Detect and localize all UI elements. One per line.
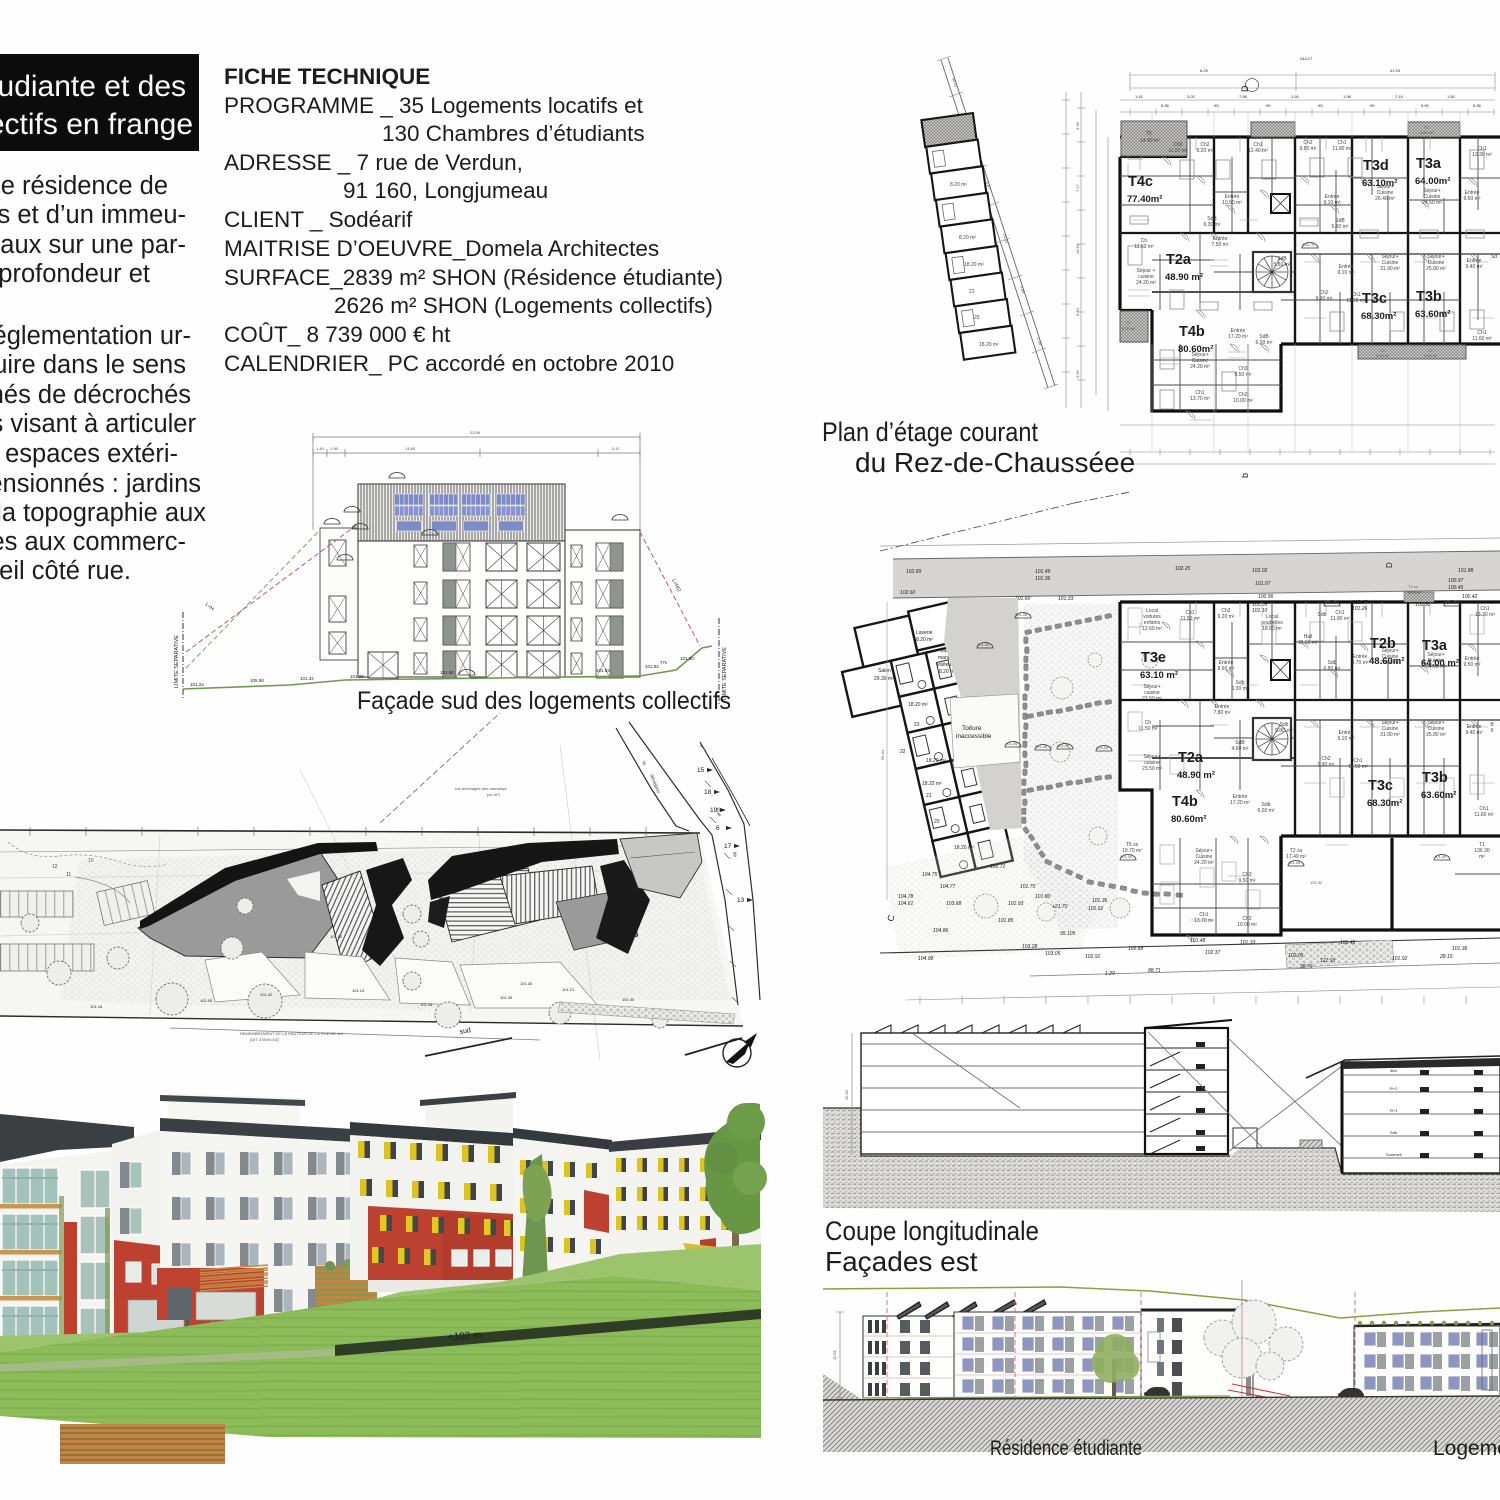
svg-text:101.45: 101.45 [1340, 940, 1356, 946]
svg-text:5.80 m²: 5.80 m² [1332, 224, 1349, 230]
svg-text:PROGRAMME _ 35 Logements locat: PROGRAMME _ 35 Logements locatifs et [224, 93, 644, 118]
svg-text:101.00: 101.00 [680, 656, 694, 661]
svg-text:(en m²): (en m²) [487, 792, 501, 797]
svg-text:24.20 m²: 24.20 m² [1194, 860, 1214, 866]
svg-text:101.40: 101.40 [622, 997, 635, 1002]
svg-text:R+2: R+2 [1390, 1086, 1398, 1091]
svg-text:14.40 m²: 14.40 m² [1140, 138, 1160, 144]
svg-text:17.20 m²: 17.20 m² [1228, 334, 1248, 340]
svg-text:63.10 m²: 63.10 m² [1140, 670, 1178, 681]
svg-text:14.80: 14.80 [405, 446, 416, 451]
svg-text:104.86: 104.86 [933, 928, 949, 934]
svg-text:la topographie aux: la topographie aux [0, 499, 206, 527]
svg-text:103.75: 103.75 [1302, 242, 1315, 247]
svg-text:9.50 m²: 9.50 m² [1464, 196, 1481, 202]
svg-text:6.80 m²: 6.80 m² [1324, 666, 1341, 672]
svg-text:8.29: 8.29 [1200, 68, 1209, 73]
svg-text:13.70 m²: 13.70 m² [1190, 396, 1210, 402]
svg-text:101.93: 101.93 [596, 668, 610, 673]
svg-text:102.89: 102.89 [906, 569, 922, 575]
svg-text:.90: .90 [1317, 103, 1323, 108]
svg-text:9.10 m²: 9.10 m² [1324, 200, 1341, 206]
svg-text:18.60 m²: 18.60 m² [1262, 626, 1282, 632]
svg-text:4.60 m²: 4.60 m² [1232, 746, 1249, 752]
svg-text:9.90 m²: 9.90 m² [1318, 762, 1335, 768]
svg-text:11.60 m²: 11.60 m² [1474, 812, 1494, 818]
svg-text:T3e: T3e [1141, 650, 1166, 666]
svg-text:101.30: 101.30 [520, 981, 533, 986]
svg-text:es et d’un immeu-: es et d’un immeu- [0, 201, 186, 229]
svg-text:100.96: 100.96 [1258, 594, 1274, 600]
svg-text:28.15: 28.15 [1439, 954, 1453, 960]
svg-text:7.98: 7.98 [1239, 94, 1248, 99]
svg-text:13.30 m²: 13.30 m² [1472, 152, 1492, 158]
svg-text:21: 21 [969, 289, 975, 295]
svg-text:Coupe longitudinale: Coupe longitudinale [825, 1216, 1039, 1246]
svg-text:9.50 m²: 9.50 m² [1464, 662, 1481, 668]
svg-text:20: 20 [934, 819, 940, 825]
svg-text:8.60 m²: 8.60 m² [1218, 666, 1235, 672]
svg-text:5.65: 5.65 [1075, 369, 1080, 378]
svg-text:101.36: 101.36 [1452, 946, 1468, 952]
svg-text:11.96: 11.96 [832, 1350, 837, 1360]
svg-text:104.77: 104.77 [940, 884, 956, 890]
svg-text:13: 13 [737, 897, 745, 904]
svg-text:102.60: 102.60 [900, 590, 916, 596]
svg-text:23: 23 [914, 722, 920, 728]
svg-text:Résidence étudiante: Résidence étudiante [990, 1437, 1142, 1460]
svg-text:24.50 m²: 24.50 m² [1422, 200, 1442, 206]
svg-text:FICHE TECHNIQUE: FICHE TECHNIQUE [224, 64, 430, 89]
svg-text:22: 22 [900, 749, 906, 755]
svg-text:7.80 m²: 7.80 m² [1214, 710, 1231, 716]
svg-text:24.20 m²: 24.20 m² [1190, 364, 1210, 370]
svg-text:11.90 m²: 11.90 m² [1330, 616, 1350, 622]
svg-text:101.05: 101.05 [1005, 741, 1018, 746]
svg-text:101.92: 101.92 [645, 664, 659, 669]
svg-text:27.50 m²: 27.50 m² [1142, 696, 1162, 702]
svg-text:15.60: 15.60 [844, 1089, 849, 1100]
svg-text:11.90 m²: 11.90 m² [1332, 146, 1352, 152]
svg-text:101.33: 101.33 [1240, 940, 1256, 946]
svg-text:ueil côté rue.: ueil côté rue. [0, 557, 131, 585]
svg-text:.90: .90 [1265, 103, 1271, 108]
svg-text:101.36: 101.36 [1092, 898, 1108, 904]
svg-text:ne résidence de: ne résidence de [0, 172, 168, 200]
svg-text:20: 20 [974, 315, 980, 321]
svg-text:4.80 m²: 4.80 m² [1420, 130, 1434, 135]
svg-text:91 160, Longjumeau: 91 160, Longjumeau [343, 178, 548, 203]
svg-text:101.34: 101.34 [300, 676, 314, 681]
svg-text:udiante et des: udiante et des [0, 70, 186, 103]
svg-text:25.80 m²: 25.80 m² [1426, 732, 1446, 738]
svg-text:9.40 m²: 9.40 m² [1466, 264, 1483, 270]
svg-text:9.20 m²: 9.20 m² [1197, 148, 1214, 154]
svg-text:13.70 m²: 13.70 m² [1194, 918, 1214, 924]
svg-text:D: D [1240, 85, 1250, 92]
svg-text:+21.70: +21.70 [1052, 904, 1068, 910]
svg-text:101.05: 101.05 [977, 642, 990, 647]
svg-text:14.50: 14.50 [1075, 243, 1080, 254]
svg-text:18.20 m²: 18.20 m² [926, 758, 946, 764]
svg-text:102.68: 102.68 [1128, 946, 1144, 952]
svg-text:18.20 m²: 18.20 m² [908, 702, 928, 708]
svg-text:17: 17 [724, 843, 732, 850]
svg-text:5.47: 5.47 [612, 446, 621, 451]
svg-text:CALENDRIER_ PC accordé en octo: CALENDRIER_ PC accordé en octobre 2010 [224, 351, 674, 376]
svg-text:24.50 m²: 24.50 m² [1426, 664, 1446, 670]
svg-text:T3c: T3c [1362, 291, 1387, 307]
svg-text:18.20 m²: 18.20 m² [964, 262, 984, 268]
svg-text:1.29: 1.29 [1105, 971, 1115, 977]
svg-text:7.17: 7.17 [1075, 183, 1080, 192]
svg-text:105.58: 105.58 [250, 678, 264, 683]
svg-text:101.92: 101.92 [1392, 956, 1408, 962]
svg-text:63.60m²: 63.60m² [1421, 790, 1456, 801]
svg-text:23.98: 23.98 [470, 430, 481, 435]
svg-text:104.78: 104.78 [898, 894, 914, 900]
svg-text:Plan d’étage courant: Plan d’étage courant [822, 417, 1038, 447]
svg-text:26.40 m²: 26.40 m² [1380, 660, 1400, 666]
svg-text:ts visant à articuler: ts visant à articuler [0, 410, 196, 438]
svg-text:més de décrochés: més de décrochés [0, 381, 191, 409]
svg-text:ccès aux commerc-: ccès aux commerc- [0, 528, 186, 556]
svg-text:13.30 m²: 13.30 m² [1475, 612, 1495, 618]
svg-text:1.91: 1.91 [1291, 94, 1300, 99]
svg-text:9.90 m²: 9.90 m² [1316, 296, 1333, 302]
svg-text:10.00 m²: 10.00 m² [1233, 398, 1253, 404]
svg-text:101.28: 101.28 [350, 674, 364, 679]
svg-text:6.00 m²: 6.00 m² [1256, 340, 1273, 346]
svg-text:cruire dans le sens: cruire dans le sens [0, 351, 186, 379]
svg-text:T3a: T3a [1416, 156, 1442, 172]
svg-text:6.30 m²: 6.30 m² [1204, 222, 1221, 228]
svg-text:48.90 m²: 48.90 m² [1165, 272, 1203, 283]
svg-text:101.07: 101.07 [1255, 581, 1271, 587]
svg-text:profondeur et: profondeur et [0, 260, 150, 288]
svg-text:R+1: R+1 [1390, 1108, 1398, 1113]
svg-text:77v: 77v [660, 660, 668, 665]
svg-text:101.26: 101.26 [1352, 606, 1368, 612]
svg-text:1.98: 1.98 [1343, 94, 1352, 99]
svg-text:6.30 m²: 6.30 m² [1232, 686, 1249, 692]
svg-text:15: 15 [697, 767, 705, 774]
svg-text:244.17: 244.17 [1300, 56, 1313, 61]
svg-text:48.90 m²: 48.90 m² [1177, 770, 1215, 781]
svg-text:4.90 m²: 4.90 m² [1424, 353, 1438, 358]
svg-text:21: 21 [926, 793, 932, 799]
svg-text:11.50 m²: 11.50 m² [1168, 148, 1188, 154]
svg-text:2626 m² SHON (Logements collec: 2626 m² SHON (Logements collectifs) [334, 293, 713, 318]
svg-text:104.75: 104.75 [922, 872, 938, 878]
svg-text:101.05: 101.05 [200, 998, 213, 1003]
svg-text:77.40m²: 77.40m² [1127, 194, 1162, 205]
svg-text:inaccessible: inaccessible [956, 733, 992, 740]
svg-text:b: b [1240, 473, 1250, 478]
svg-text:5.80 m²: 5.80 m² [1274, 262, 1291, 268]
svg-text:101.05: 101.05 [1434, 854, 1447, 859]
svg-text:103.05: 103.05 [1045, 951, 1061, 957]
svg-text:31.90 m²: 31.90 m² [1380, 266, 1400, 272]
svg-text:95.105: 95.105 [1060, 931, 1076, 937]
svg-text:ADRESSE _ 7 rue de Verdun,: ADRESSE _ 7 rue de Verdun, [224, 150, 523, 175]
svg-text:7.19: 7.19 [1395, 94, 1404, 99]
svg-text:T3b: T3b [1422, 770, 1448, 786]
svg-text:29.30 m²: 29.30 m² [874, 676, 894, 682]
svg-text:Sdb: Sdb [1390, 1130, 1398, 1135]
svg-text:17.20 m²: 17.20 m² [1230, 800, 1250, 806]
svg-text:m²: m² [1479, 854, 1485, 860]
svg-text:25.80 m²: 25.80 m² [1426, 266, 1446, 272]
svg-text:102.37: 102.37 [1205, 950, 1221, 956]
svg-text:101.05: 101.05 [1096, 745, 1109, 750]
svg-text:9.50 m²: 9.50 m² [1239, 878, 1256, 884]
svg-text:églementation ur-: églementation ur- [0, 322, 191, 350]
svg-text:10.50 m²: 10.50 m² [1222, 200, 1242, 206]
svg-text:12.60 m²: 12.60 m² [1142, 626, 1162, 632]
svg-text:Façade sud des logements colle: Façade sud des logements collectifs [357, 687, 731, 715]
svg-text:3.02: 3.02 [1187, 94, 1196, 99]
svg-text:41.93: 41.93 [1390, 68, 1401, 73]
svg-text:8.20 m²: 8.20 m² [916, 637, 933, 643]
svg-text:(DIT 47859-002): (DIT 47859-002) [250, 1037, 280, 1042]
svg-text:T2a: T2a [1166, 252, 1192, 268]
svg-text:101.80: 101.80 [1035, 894, 1051, 900]
svg-text:Sdb: Sdb [1318, 612, 1327, 618]
svg-text:T3b: T3b [1416, 289, 1442, 305]
svg-text:18.20 m²: 18.20 m² [979, 342, 999, 348]
svg-text:26.40 m²: 26.40 m² [1375, 196, 1395, 202]
svg-text:9.20 m²: 9.20 m² [1218, 614, 1235, 620]
svg-text:D: D [1385, 562, 1394, 568]
svg-text:9.10 m²: 9.10 m² [1338, 270, 1355, 276]
svg-text:9.50 m²: 9.50 m² [1235, 372, 1252, 378]
svg-text:+102 m: +102 m [447, 1330, 481, 1343]
svg-text:1.41: 1.41 [1135, 94, 1144, 99]
svg-text:Logements: Logements [1433, 1437, 1500, 1460]
svg-text:11.50 m²: 11.50 m² [1180, 616, 1200, 622]
svg-text:19: 19 [710, 807, 718, 814]
svg-text:101.13: 101.13 [352, 988, 365, 993]
svg-text:101.05: 101.05 [1035, 744, 1048, 749]
svg-text:Salon: Salon [878, 668, 891, 674]
svg-text:T5: T5 [1146, 131, 1152, 137]
svg-text:ectifs en frange: ectifs en frange [0, 108, 193, 141]
svg-text:Sommeil: Sommeil [1386, 1152, 1402, 1157]
svg-text:Façades est: Façades est [825, 1246, 978, 1277]
svg-text:101.21: 101.21 [562, 987, 575, 992]
svg-text:101.71: 101.71 [990, 864, 1006, 870]
svg-text:SURFACE_2839 m² SHON (Résiden: SURFACE_2839 m² SHON (Résidence étudiant… [224, 265, 723, 290]
svg-text:T4b: T4b [1179, 324, 1205, 340]
svg-text:59.44: 59.44 [880, 749, 885, 760]
svg-text:6.00 m²: 6.00 m² [1258, 808, 1275, 814]
svg-text:8.20 m²: 8.20 m² [959, 235, 976, 241]
svg-text:101.93: 101.93 [1008, 901, 1024, 907]
svg-text:103.68: 103.68 [946, 901, 962, 907]
svg-text:6: 6 [716, 825, 720, 832]
svg-text:T4 sx: T4 sx [1408, 584, 1418, 589]
svg-text:11.50 m²: 11.50 m² [1348, 764, 1368, 770]
svg-text:64.00m²: 64.00m² [1415, 176, 1450, 187]
svg-text:102.91: 102.91 [1085, 954, 1101, 960]
svg-text:MAITRISE D’OEUVRE_Domela Archi: MAITRISE D’OEUVRE_Domela Architectes [224, 236, 659, 261]
svg-text:Laverie: Laverie [916, 630, 933, 636]
svg-text:101.18: 101.18 [90, 1004, 103, 1009]
svg-text:1.98: 1.98 [330, 446, 339, 451]
svg-text:8.20 m²: 8.20 m² [950, 182, 967, 188]
svg-text:COÛT_ 8 739 000 € ht: COÛT_ 8 739 000 € ht [224, 322, 451, 347]
svg-text:T3c: T3c [1368, 778, 1393, 794]
svg-text:101.48: 101.48 [1190, 938, 1206, 944]
svg-text:7.50 m²: 7.50 m² [1212, 242, 1229, 248]
svg-text:6.20 m²: 6.20 m² [1122, 326, 1136, 331]
svg-text:Toiture: Toiture [962, 725, 982, 732]
svg-text:12: 12 [52, 864, 58, 870]
svg-text:LIMITE SEPARATIVE: LIMITE SEPARATIVE [174, 635, 180, 688]
svg-text:101.05: 101.05 [1120, 854, 1133, 859]
svg-text:du Rez-de-Chausséee: du Rez-de-Chausséee [855, 447, 1135, 478]
svg-text:104.61: 104.61 [898, 901, 914, 907]
svg-text:CLIENT _ Sodéarif: CLIENT _ Sodéarif [224, 207, 413, 232]
svg-text:T2a: T2a [1178, 750, 1204, 766]
svg-text:100.45: 100.45 [1448, 585, 1464, 591]
svg-text:103.28: 103.28 [1022, 944, 1038, 950]
svg-text:es espaces extéri-: es espaces extéri- [0, 440, 178, 468]
svg-text:63.60m²: 63.60m² [1415, 309, 1450, 320]
svg-text:5.8C m²: 5.8C m² [1275, 728, 1293, 734]
svg-text:.90: .90 [1213, 103, 1219, 108]
svg-text:101.85: 101.85 [998, 918, 1014, 924]
svg-text:38.76: 38.76 [1300, 964, 1313, 970]
svg-text:11.50 m²: 11.50 m² [1134, 244, 1154, 250]
svg-text:5.36: 5.36 [1473, 103, 1482, 108]
svg-text:5.90: 5.90 [1421, 103, 1430, 108]
svg-text:101.05: 101.05 [1057, 743, 1070, 748]
svg-text:9.80 m²: 9.80 m² [1300, 146, 1317, 152]
svg-text:101.42: 101.42 [260, 992, 273, 997]
svg-text:130 Chambres d’étudiants: 130 Chambres d’étudiants [382, 121, 645, 146]
svg-text:T3d: T3d [1363, 158, 1389, 174]
svg-text:121.93: 121.93 [1320, 958, 1336, 964]
svg-text:3.70 m²: 3.70 m² [1352, 660, 1369, 666]
svg-text:9: 9 [1491, 728, 1494, 734]
svg-text:68.30m²: 68.30m² [1367, 798, 1402, 809]
svg-text:6.20 m²: 6.20 m² [1408, 590, 1422, 595]
svg-text:102.02: 102.02 [1252, 568, 1268, 574]
svg-text:88.71: 88.71 [1148, 968, 1161, 974]
svg-text:101.28: 101.28 [420, 1002, 433, 1007]
svg-text:100.42: 100.42 [1462, 594, 1478, 600]
svg-text:101.50: 101.50 [440, 670, 454, 675]
svg-text:101.70: 101.70 [1020, 884, 1036, 890]
svg-text:101.88: 101.88 [1458, 568, 1474, 574]
svg-text:11.50 m²: 11.50 m² [1346, 298, 1366, 304]
svg-text:31.90 m²: 31.90 m² [1380, 732, 1400, 738]
svg-text:T4c: T4c [1128, 174, 1153, 190]
svg-text:nensionnés : jardins: nensionnés : jardins [0, 470, 201, 498]
svg-text:T4: T4 [1126, 320, 1131, 325]
svg-text:101.35: 101.35 [500, 995, 513, 1000]
svg-text:9.40 m²: 9.40 m² [1466, 730, 1483, 736]
svg-text:101.05: 101.05 [1444, 600, 1457, 605]
svg-text:5.10 m²: 5.10 m² [1376, 353, 1390, 358]
svg-text:68.30m²: 68.30m² [1361, 311, 1396, 322]
svg-text:11.60 m²: 11.60 m² [1472, 336, 1492, 342]
svg-text:101.2a: 101.2a [190, 682, 204, 687]
svg-text:101.49: 101.49 [1035, 569, 1051, 575]
svg-text:9.10 m²: 9.10 m² [1338, 736, 1355, 742]
svg-text:102.05: 102.05 [1288, 953, 1304, 959]
svg-text:rue aménagée des tramways: rue aménagée des tramways [455, 786, 507, 791]
svg-text:104.98: 104.98 [918, 956, 934, 962]
svg-text:9.20: 9.20 [1075, 307, 1080, 316]
svg-text:1.50: 1.50 [1447, 94, 1456, 99]
svg-text:1.40: 1.40 [316, 446, 325, 451]
svg-text:18: 18 [704, 789, 712, 796]
svg-text:102.25: 102.25 [1175, 566, 1191, 572]
svg-text:Sd: Sd [1491, 254, 1497, 260]
svg-text:11.50 m²: 11.50 m² [1138, 726, 1158, 732]
svg-text:18.22 m²: 18.22 m² [922, 781, 942, 787]
svg-text:3èd: 3èd [1390, 1068, 1397, 1073]
svg-text:11.50 m²: 11.50 m² [1298, 640, 1318, 646]
svg-text:101.36: 101.36 [1035, 576, 1051, 582]
svg-text:23.50 m²: 23.50 m² [1142, 766, 1162, 772]
svg-text:101.33: 101.33 [1058, 596, 1074, 602]
svg-text:101.05: 101.05 [1288, 860, 1301, 865]
svg-text:101.52: 101.52 [330, 934, 343, 939]
svg-text:11: 11 [66, 872, 71, 878]
svg-text:24.20 m²: 24.20 m² [1136, 280, 1156, 286]
svg-text:ciaux sur une par-: ciaux sur une par- [0, 231, 186, 259]
svg-text:101.05: 101.05 [1015, 612, 1028, 617]
svg-text:REMEMBREMENT DE LA HAUTEUR DE: REMEMBREMENT DE LA HAUTEUR DE LA RUE DE … [240, 1031, 343, 1036]
svg-text:3.98: 3.98 [1075, 121, 1080, 130]
svg-text:.90: .90 [1369, 103, 1375, 108]
svg-text:12.40 m²: 12.40 m² [1248, 148, 1268, 154]
svg-text:80.60m²: 80.60m² [1171, 814, 1206, 825]
svg-text:10.00 m²: 10.00 m² [1237, 922, 1257, 928]
svg-text:T4b: T4b [1172, 794, 1198, 810]
svg-text:5.36: 5.36 [1161, 103, 1170, 108]
svg-text:101.34: 101.34 [1310, 880, 1323, 885]
svg-text:101.05: 101.05 [1324, 600, 1337, 605]
svg-text:101.62: 101.62 [1088, 906, 1104, 912]
svg-text:100.97: 100.97 [1448, 578, 1464, 584]
